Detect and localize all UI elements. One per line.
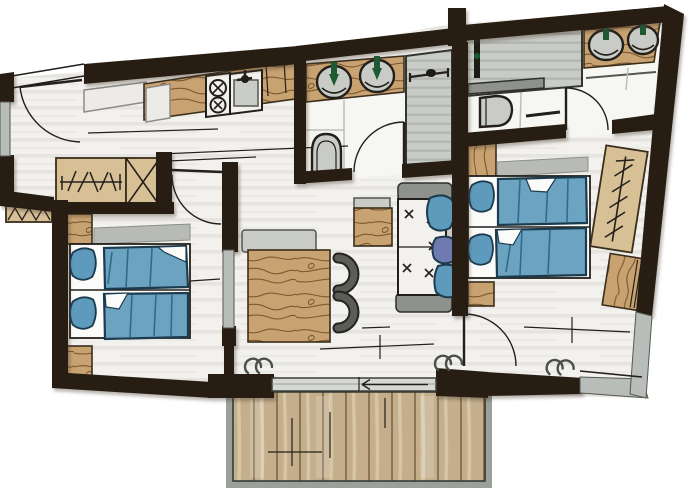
balcony-sliding-door [272, 377, 436, 391]
luggage-rack [126, 158, 160, 206]
balcony-deck [233, 392, 485, 481]
sofa-cushion [427, 195, 455, 230]
wardrobe [56, 158, 126, 206]
floor-plan-canvas [0, 0, 700, 500]
sofa [396, 183, 461, 312]
floor-plan-page: Hand-drawn apartment floor plan with two… [0, 0, 700, 500]
pillow [70, 248, 96, 279]
nightstand [468, 282, 494, 306]
window [0, 102, 10, 156]
pillow [70, 297, 96, 328]
twin-beds [468, 176, 590, 278]
twin-beds [70, 244, 190, 339]
headboard [94, 224, 190, 244]
pillow [468, 234, 493, 264]
cabinet [468, 141, 496, 180]
bench [242, 230, 316, 252]
interior-window [223, 250, 234, 328]
fridge [146, 84, 170, 122]
dining-table [248, 250, 330, 342]
shower [406, 50, 452, 176]
balcony [226, 390, 492, 488]
toilet [312, 134, 341, 174]
coffee-table [354, 208, 392, 246]
toilet [480, 96, 512, 127]
cooktop [206, 73, 230, 117]
kitchen-sink [230, 70, 262, 114]
pillow [469, 181, 494, 211]
